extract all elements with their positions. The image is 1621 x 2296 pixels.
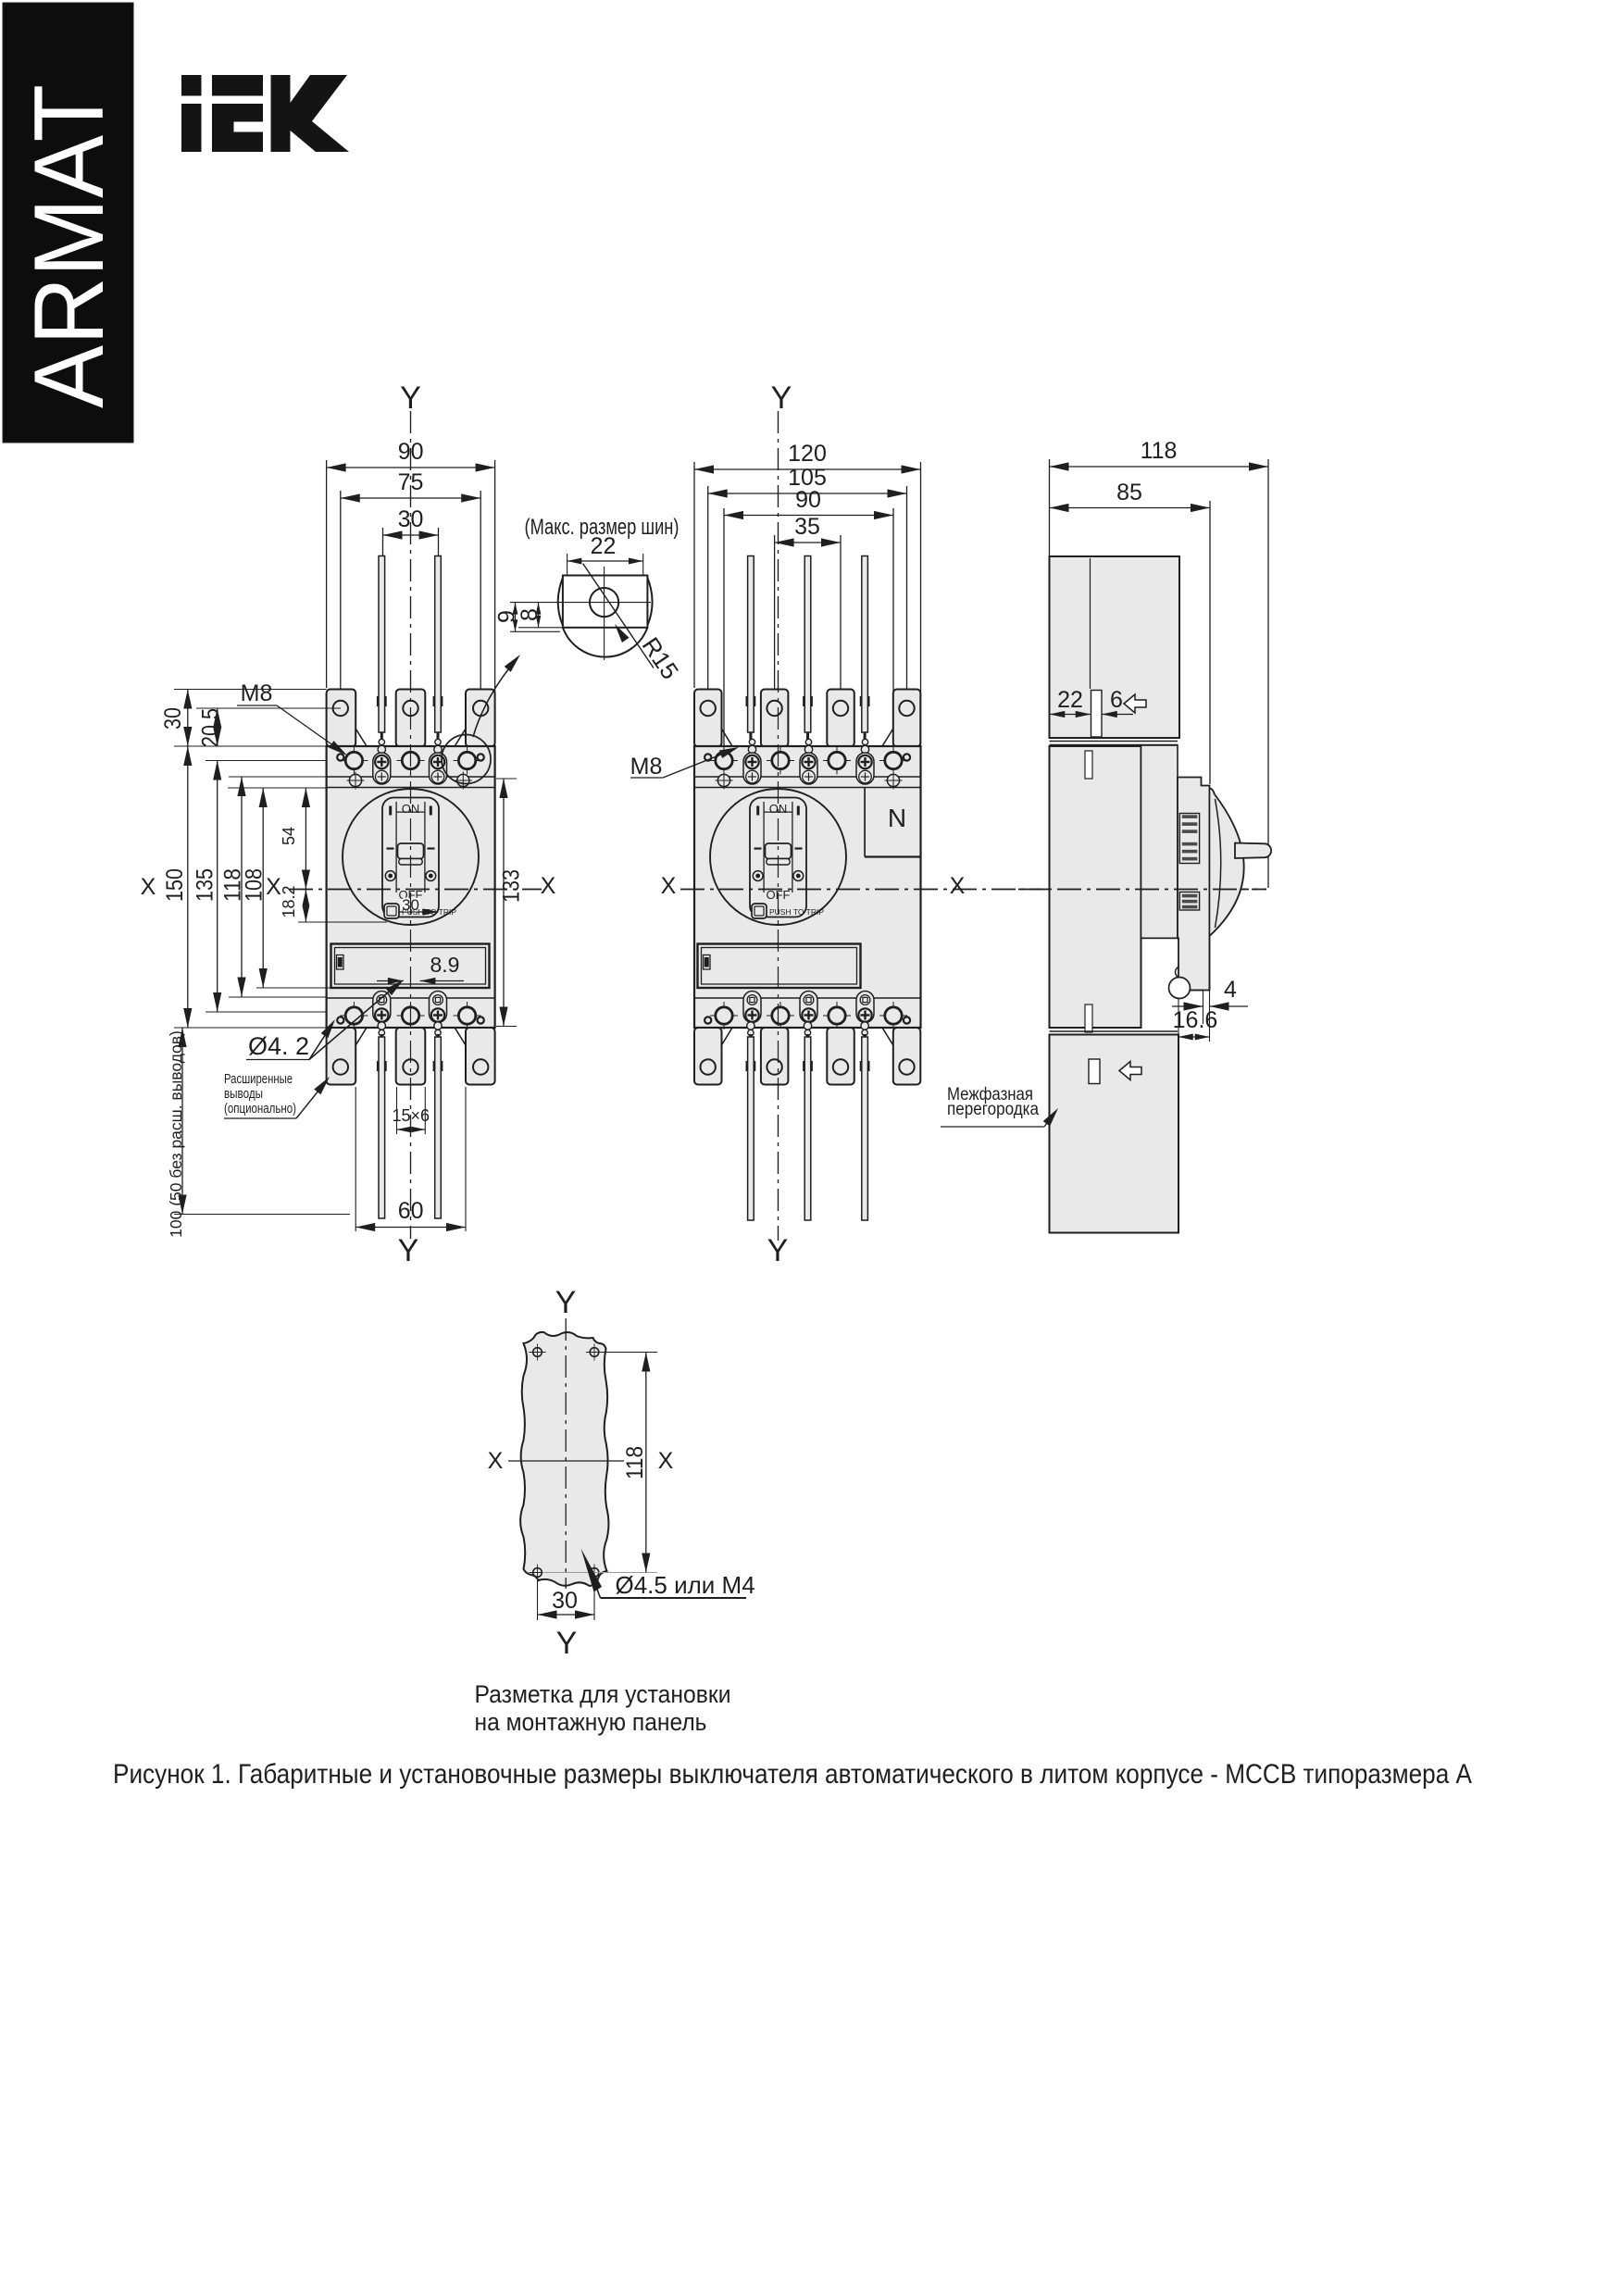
svg-text:4: 4	[1224, 977, 1237, 1003]
svg-text:133: 133	[499, 869, 525, 903]
svg-text:(опционально): (опционально)	[224, 1102, 296, 1117]
svg-text:118: 118	[622, 1446, 648, 1479]
svg-text:выводы: выводы	[224, 1087, 263, 1102]
svg-text:150: 150	[162, 868, 188, 902]
svg-text:X: X	[266, 874, 281, 900]
svg-text:22: 22	[591, 533, 617, 559]
svg-text:Y: Y	[771, 381, 792, 416]
svg-text:Ø4. 2: Ø4. 2	[248, 1032, 309, 1060]
svg-text:X: X	[141, 874, 156, 900]
svg-text:R15: R15	[637, 632, 685, 684]
svg-text:60: 60	[398, 1198, 424, 1224]
svg-text:54: 54	[280, 827, 298, 845]
svg-text:N: N	[888, 804, 906, 832]
svg-text:Ø4.5 или М4: Ø4.5 или М4	[616, 1571, 755, 1599]
svg-text:8.9: 8.9	[430, 953, 460, 977]
svg-text:Y: Y	[556, 1626, 578, 1661]
svg-text:8: 8	[517, 608, 542, 621]
svg-text:перегородка: перегородка	[947, 1099, 1039, 1119]
svg-text:ON: ON	[769, 802, 788, 816]
svg-text:108: 108	[242, 868, 268, 902]
svg-text:Разметка для установки: Разметка для установки	[475, 1680, 731, 1708]
svg-text:30: 30	[160, 707, 186, 730]
svg-text:85: 85	[1116, 480, 1142, 505]
svg-text:120: 120	[788, 441, 827, 467]
svg-text:Рисунок 1. Габаритные и устано: Рисунок 1. Габаритные и установочные раз…	[113, 1759, 1472, 1790]
svg-text:16.6: 16.6	[1173, 1007, 1218, 1033]
svg-text:15×6: 15×6	[393, 1106, 430, 1125]
svg-text:118: 118	[1141, 438, 1178, 464]
svg-text:Y: Y	[400, 381, 421, 416]
svg-text:на монтажную панель: на монтажную панель	[475, 1708, 707, 1736]
svg-text:Y: Y	[555, 1285, 577, 1320]
svg-text:22: 22	[1057, 687, 1083, 713]
svg-text:90: 90	[795, 487, 821, 513]
svg-text:X: X	[661, 873, 677, 899]
svg-text:Расширенные: Расширенные	[224, 1072, 293, 1087]
svg-text:6: 6	[1110, 687, 1123, 713]
svg-text:20.5: 20.5	[198, 708, 224, 747]
svg-text:X: X	[488, 1448, 504, 1474]
svg-text:ARMAT: ARMAT	[13, 84, 124, 408]
svg-text:18.2: 18.2	[280, 885, 298, 917]
svg-text:M8: M8	[241, 680, 273, 706]
svg-text:100 (50 без расш. выводов): 100 (50 без расш. выводов)	[167, 1030, 185, 1238]
svg-text:Y: Y	[398, 1233, 419, 1268]
svg-text:ON: ON	[402, 802, 420, 816]
svg-text:M8: M8	[630, 754, 663, 780]
svg-text:135: 135	[193, 868, 218, 902]
svg-text:X: X	[658, 1448, 674, 1474]
svg-text:35: 35	[794, 514, 820, 540]
svg-text:30: 30	[552, 1588, 578, 1614]
svg-text:X: X	[541, 873, 556, 899]
svg-text:X: X	[950, 873, 966, 899]
